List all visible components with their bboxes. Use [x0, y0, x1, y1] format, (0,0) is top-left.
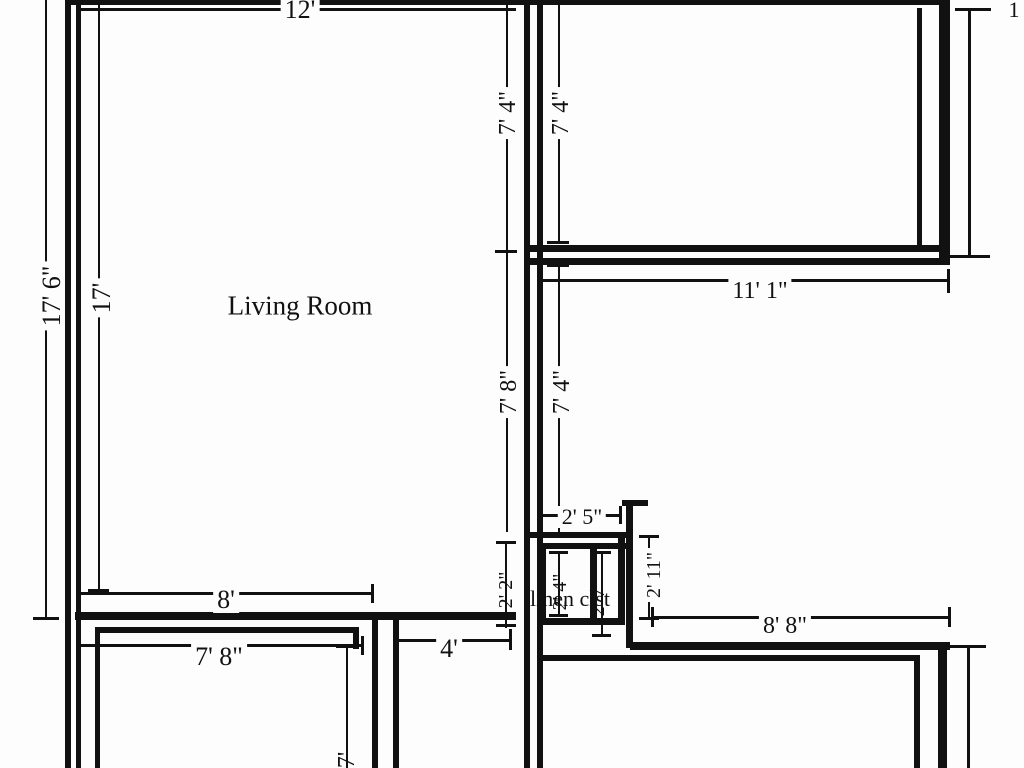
wall-bottomright-right-inner [914, 655, 920, 768]
dim-label-11ft1: 11' 1" [728, 279, 791, 303]
wall-right-upper-inner [917, 8, 922, 252]
dim-tick [619, 506, 622, 524]
floor-plan: Living Room linen clst 12' 11' 1" 8' 7' … [0, 0, 1024, 768]
wall-bottomright-right-outer [938, 642, 947, 768]
dim-tick [547, 264, 569, 267]
dim-tick [384, 613, 408, 616]
dim-tick [509, 629, 512, 650]
dim-label-cutoff-bottom-left: 7' [335, 752, 359, 768]
dim-label-closet-left: 2' 2" [496, 572, 516, 609]
dim-tick [336, 645, 358, 648]
wall-right-upper-outer [939, 0, 950, 265]
wall-hall-top [75, 612, 516, 620]
closet-box-left [540, 543, 546, 625]
dim-label-17ft: 17' [89, 279, 115, 318]
dim-label-7ft4-upper-right: 7' 4" [549, 87, 573, 139]
dim-tick [540, 506, 543, 524]
dim-label-closet-inner-right: 2' 7" [588, 580, 608, 617]
dim-label-7ft4-mid-right: 7' 4" [550, 366, 574, 418]
closet-box-right [618, 532, 625, 625]
wall-topright-bottom-inner [524, 258, 950, 265]
dim-label-closet-inner-left: 2' 4" [550, 574, 570, 611]
wall-closet-top [524, 532, 632, 538]
wall-bottomleft-right-b [393, 613, 399, 768]
dim-label-4ft: 4' [436, 636, 462, 662]
dim-tick [950, 255, 990, 258]
dim-tick [539, 269, 542, 293]
wall-center-right-line [537, 0, 543, 768]
dim-line-bottomright [967, 648, 970, 768]
dim-tick [88, 589, 109, 592]
wall-bottomleft-right-a [372, 613, 378, 768]
dim-tick [592, 551, 611, 554]
dim-label-7ft8-mid-left: 7' 8" [497, 366, 521, 418]
dim-tick [947, 269, 950, 293]
dim-tick [955, 8, 991, 11]
dim-label-12ft: 12' [281, 0, 320, 23]
dim-label-17ft6: 17' 6" [39, 262, 65, 331]
dim-tick [495, 250, 517, 253]
wall-bottomright-top-outer [630, 642, 950, 650]
dim-label-2ft11: 2' 11" [644, 548, 664, 602]
dim-tick [651, 607, 654, 627]
closet-box-bottom [540, 618, 625, 625]
dim-tick [549, 614, 568, 617]
room-label-living-room: Living Room [228, 293, 373, 320]
dim-label-2ft5: 2' 5" [558, 506, 606, 528]
wall-stub-vertical [626, 500, 633, 648]
dim-line-bottomleft [346, 648, 348, 768]
wall-topright-bottom-outer [524, 245, 950, 252]
dim-tick [371, 584, 374, 603]
dim-label-7ft4-upper-left: 7' 4" [496, 87, 520, 139]
dim-tick [77, 584, 80, 603]
dim-tick [76, 636, 79, 655]
wall-bottomleft-left-inner [95, 627, 100, 768]
dim-tick [547, 241, 569, 244]
dim-tick [496, 541, 516, 544]
wall-bottomright-top-inner [543, 655, 917, 661]
dim-tick [549, 551, 568, 554]
dim-label-cutoff-top-right: 1 [1009, 0, 1020, 21]
wall-bottomleft-top-inner [95, 627, 358, 633]
dim-label-8ft8: 8' 8" [759, 614, 811, 638]
dim-tick [33, 617, 59, 620]
wall-stub-horizontal [622, 500, 648, 506]
dim-tick [496, 624, 516, 627]
wall-center-left-line [524, 0, 530, 768]
dim-label-8ft: 8' [213, 587, 239, 613]
dim-line-topright [968, 8, 971, 258]
dim-tick [592, 634, 611, 637]
dim-label-7ft8-bottom: 7' 8" [191, 644, 247, 670]
dim-tick [950, 645, 986, 648]
dim-tick [361, 636, 364, 655]
dim-tick [948, 607, 951, 627]
wall-left-outer [65, 0, 71, 768]
dim-tick [639, 535, 659, 538]
